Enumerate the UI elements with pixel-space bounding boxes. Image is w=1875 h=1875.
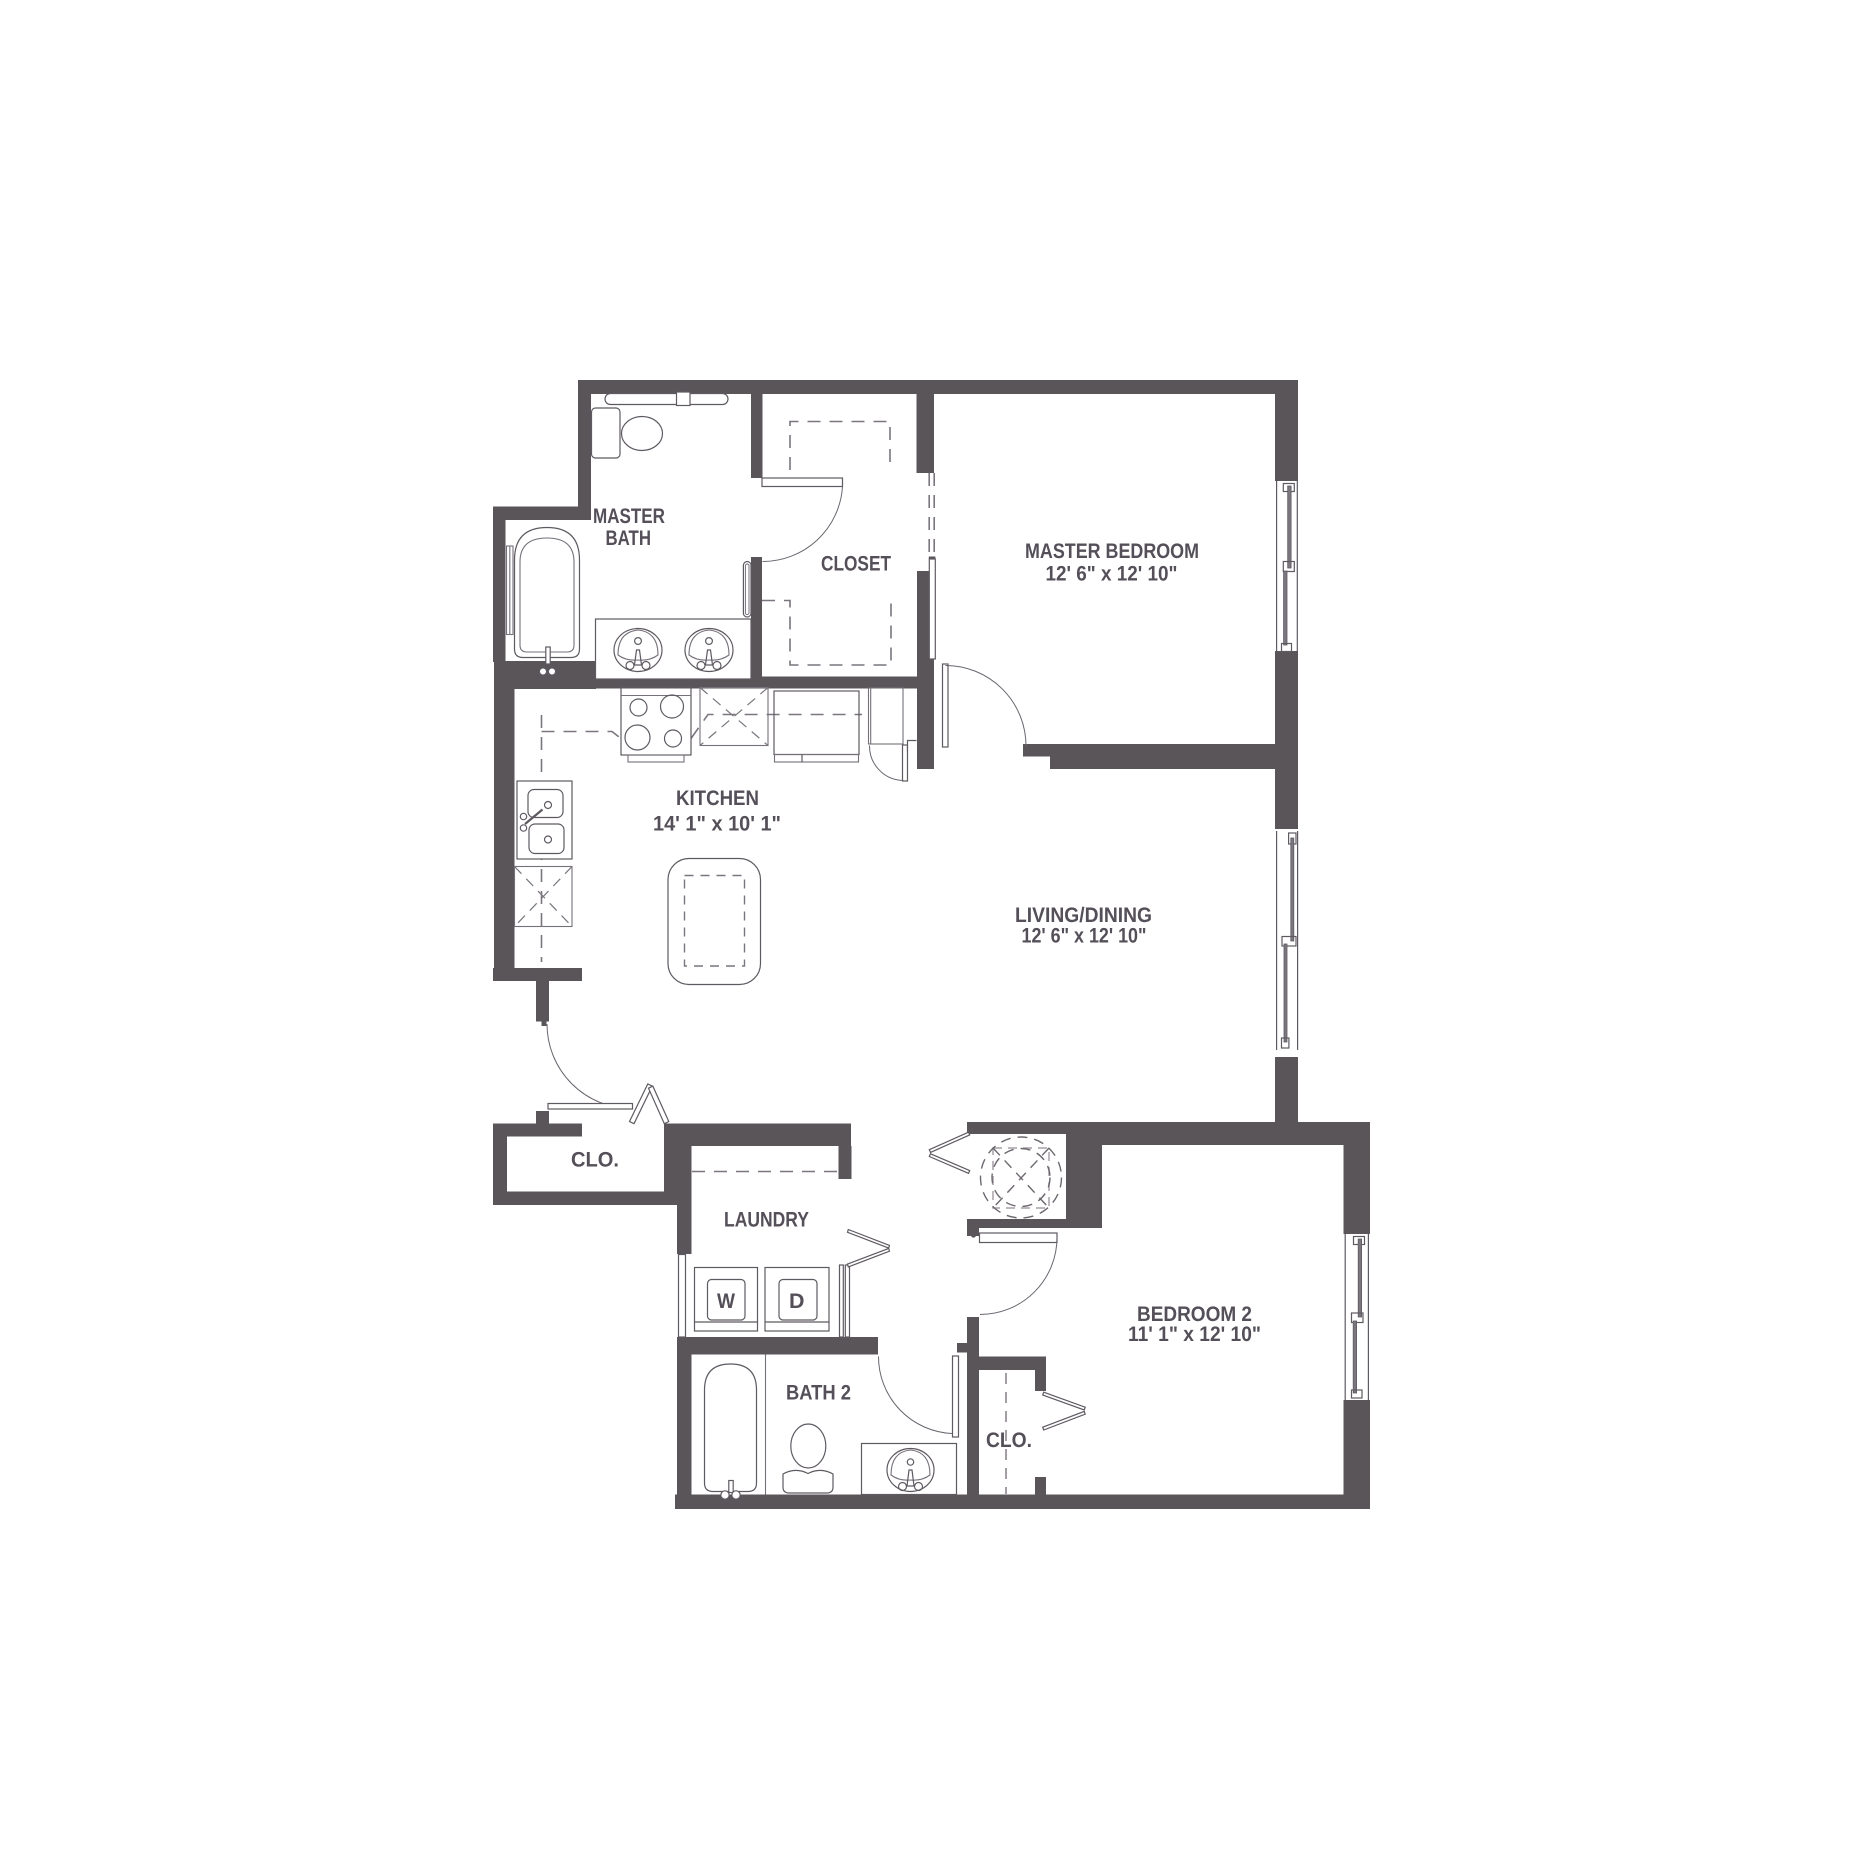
svg-text:CLOSET: CLOSET bbox=[821, 553, 891, 576]
svg-text:14' 1" x 10' 1": 14' 1" x 10' 1" bbox=[653, 813, 781, 836]
svg-text:11' 1" x 12' 10": 11' 1" x 12' 10" bbox=[1128, 1323, 1261, 1346]
svg-text:MASTER: MASTER bbox=[593, 505, 665, 528]
svg-text:LAUNDRY: LAUNDRY bbox=[724, 1209, 809, 1232]
svg-text:D: D bbox=[789, 1290, 805, 1313]
svg-text:BATH 2: BATH 2 bbox=[786, 1382, 851, 1405]
svg-text:12' 6" x 12' 10": 12' 6" x 12' 10" bbox=[1046, 563, 1178, 586]
svg-text:CLO.: CLO. bbox=[986, 1429, 1032, 1452]
svg-text:MASTER BEDROOM: MASTER BEDROOM bbox=[1025, 540, 1199, 563]
svg-text:KITCHEN: KITCHEN bbox=[676, 787, 759, 810]
svg-text:12' 6" x 12' 10": 12' 6" x 12' 10" bbox=[1022, 925, 1147, 948]
svg-text:W: W bbox=[717, 1290, 735, 1313]
svg-text:BATH: BATH bbox=[606, 527, 652, 550]
svg-text:CLO.: CLO. bbox=[571, 1149, 619, 1172]
